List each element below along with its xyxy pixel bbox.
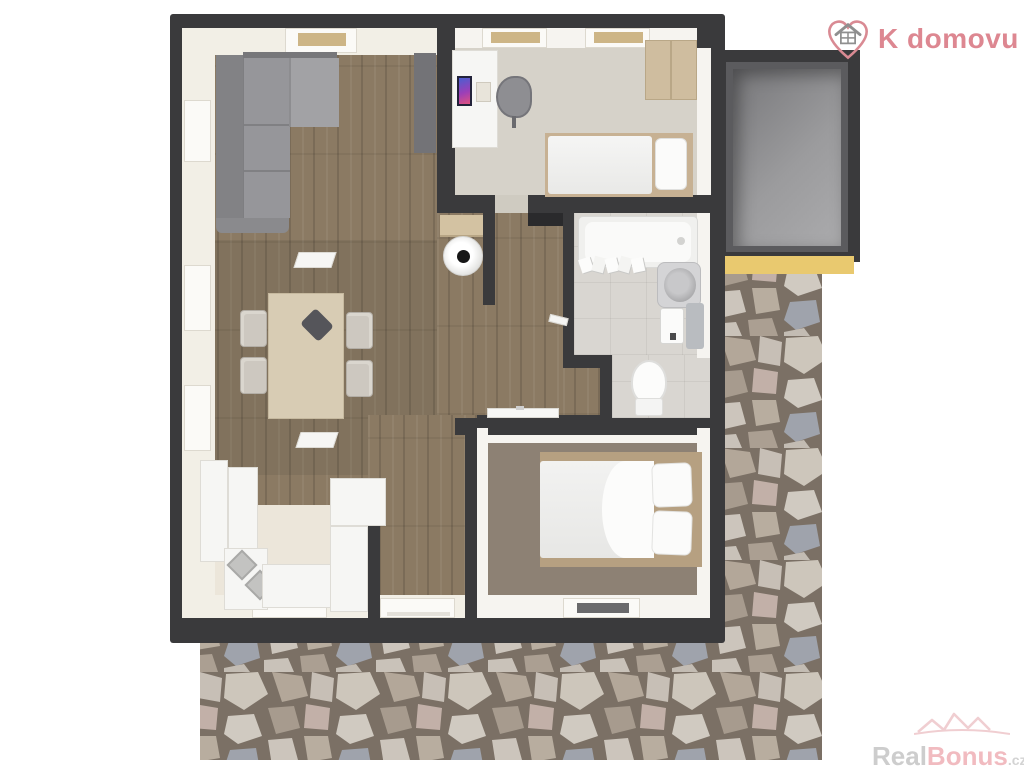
nook-floor (563, 368, 600, 415)
bedroom-left-wall-face (477, 428, 488, 618)
sofa-seam (244, 170, 290, 172)
ceiling-light (293, 252, 336, 268)
water-heater (443, 236, 483, 276)
watermark-text: RealBonus.cz (872, 741, 1022, 768)
entry-door (380, 598, 455, 618)
office-bottom-wall (437, 195, 495, 213)
dining-chair (346, 360, 373, 397)
window (184, 265, 211, 331)
sofa-armrest (216, 218, 289, 233)
office-door-opening (495, 195, 528, 213)
heart-house-icon (826, 16, 870, 62)
bed-pillow (651, 510, 693, 555)
bedroom-door (487, 408, 559, 418)
watermark-bonus: Bonus (927, 741, 1008, 768)
single-bed-duvet (548, 136, 652, 194)
watermark: RealBonus.cz (872, 710, 1022, 768)
kitchen-peninsula (330, 526, 368, 612)
duvet-fold (602, 461, 654, 558)
kitchen-tall-cabinet (200, 460, 228, 562)
bed-pillow (655, 138, 687, 190)
window (285, 28, 357, 53)
tv-cabinet (414, 53, 436, 153)
sofa-seam (244, 124, 290, 126)
towel (591, 256, 606, 274)
wardrobe-divider (670, 41, 672, 99)
bedroom-top-wall (455, 418, 710, 435)
hall-wall-stub (483, 213, 495, 305)
double-bed-duvet (540, 461, 654, 558)
niche-shelf (440, 215, 483, 237)
bedroom-left-wall (465, 428, 477, 618)
hall-closet-niche (528, 213, 563, 226)
door-handle (516, 406, 524, 410)
logo: K domovu (826, 16, 1019, 62)
window (184, 385, 211, 451)
water-heater-lid (457, 250, 470, 263)
bathroom-left-wall-upper (563, 213, 574, 303)
window (184, 100, 211, 162)
office-chair-base (512, 116, 516, 128)
nook-top-wall (563, 355, 612, 368)
washing-machine (657, 262, 701, 308)
watermark-cz: .cz (1008, 752, 1024, 768)
towels (580, 256, 644, 274)
window-glass (298, 33, 346, 46)
table-bowl (300, 308, 334, 342)
nook-right-wall (600, 368, 612, 415)
desk-monitor (457, 76, 472, 106)
washbasin (660, 308, 684, 344)
desk-keyboard (476, 82, 491, 102)
bathroom-left-wall-lower (563, 333, 574, 355)
towel (604, 257, 619, 273)
bathtub-drain (677, 237, 685, 245)
watermark-real: Real (872, 741, 927, 768)
window (585, 28, 650, 48)
storage-room-floor (733, 69, 841, 246)
washing-machine-lid (664, 268, 696, 302)
ceiling-light (295, 432, 338, 448)
floorplan-render: K domovu RealBonus.cz (0, 0, 1024, 768)
bathroom-top-wall (528, 195, 710, 213)
bed-pillow (651, 462, 693, 507)
window-glass (491, 32, 540, 43)
dining-chair (346, 312, 373, 349)
sofa-chaise (289, 58, 339, 127)
window-glass (577, 603, 629, 613)
logo-text: K domovu (878, 23, 1019, 55)
towel (631, 257, 646, 273)
sofa-backrest-left (216, 55, 243, 218)
kitchen-counter-left (228, 467, 258, 555)
monitor-screen (459, 78, 470, 104)
sunlit-facade-strip (714, 256, 854, 274)
bathroom-cabinet (686, 303, 704, 349)
right-wall-face-office (697, 48, 711, 195)
dining-chair (240, 310, 267, 347)
dining-table (268, 293, 344, 419)
window (482, 28, 547, 48)
toilet-tank (635, 398, 663, 416)
washbasin-drain (670, 333, 676, 340)
office-chair (496, 76, 532, 118)
wardrobe (645, 40, 697, 100)
window (563, 598, 640, 618)
window-glass (594, 32, 643, 43)
kitchen-peninsula-top (330, 478, 386, 526)
houses-outline-icon (914, 710, 1010, 736)
entry-door-step (387, 612, 450, 616)
sofa-seats (243, 58, 290, 218)
dining-chair (240, 357, 267, 394)
